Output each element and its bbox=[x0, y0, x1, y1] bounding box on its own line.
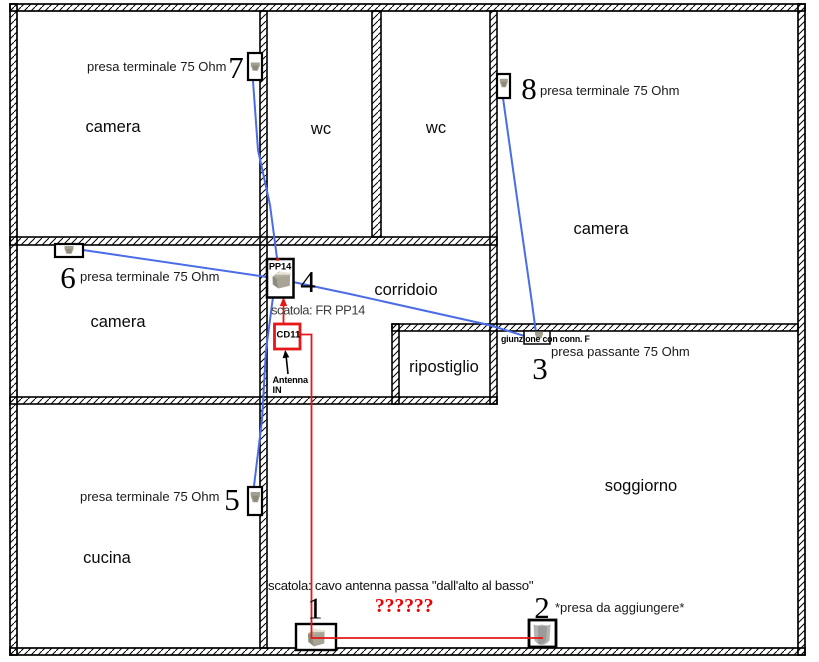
svg-text:2: 2 bbox=[534, 590, 550, 625]
svg-text:camera: camera bbox=[85, 118, 141, 136]
svg-text:7: 7 bbox=[228, 50, 244, 85]
svg-text:cucina: cucina bbox=[83, 549, 132, 567]
svg-text:corridoio: corridoio bbox=[374, 281, 437, 299]
svg-text:CD11: CD11 bbox=[277, 330, 301, 341]
svg-text:PP14: PP14 bbox=[269, 262, 292, 272]
svg-text:presa terminale 75 Ohm: presa terminale 75 Ohm bbox=[87, 59, 226, 74]
svg-text:5: 5 bbox=[224, 482, 240, 517]
svg-text:??????: ?????? bbox=[375, 596, 434, 617]
svg-text:presa terminale 75 Ohm: presa terminale 75 Ohm bbox=[540, 83, 679, 98]
svg-text:IN: IN bbox=[273, 385, 283, 395]
svg-text:*presa da aggiungere*: *presa da aggiungere* bbox=[555, 600, 684, 615]
svg-text:camera: camera bbox=[573, 220, 629, 238]
svg-text:6: 6 bbox=[60, 260, 76, 295]
svg-text:1: 1 bbox=[307, 591, 323, 626]
svg-text:scatola: FR PP14: scatola: FR PP14 bbox=[271, 303, 365, 318]
svg-text:ripostiglio: ripostiglio bbox=[409, 358, 479, 376]
svg-text:presa passante 75 Ohm: presa passante 75 Ohm bbox=[551, 344, 690, 359]
svg-text:soggiorno: soggiorno bbox=[605, 477, 677, 495]
svg-text:presa terminale 75 Ohm: presa terminale 75 Ohm bbox=[80, 489, 219, 504]
svg-text:giunzione con conn. F: giunzione con conn. F bbox=[501, 334, 590, 344]
svg-text:wc: wc bbox=[310, 120, 331, 138]
svg-text:Antenna: Antenna bbox=[273, 375, 309, 385]
svg-text:camera: camera bbox=[90, 313, 146, 331]
svg-text:4: 4 bbox=[300, 264, 316, 299]
svg-text:presa terminale 75 Ohm: presa terminale 75 Ohm bbox=[80, 269, 219, 284]
svg-text:3: 3 bbox=[532, 351, 548, 386]
svg-text:8: 8 bbox=[521, 71, 537, 106]
svg-text:wc: wc bbox=[425, 119, 446, 137]
svg-text:scatola: cavo antenna passa "d: scatola: cavo antenna passa "dall'alto a… bbox=[268, 578, 534, 593]
